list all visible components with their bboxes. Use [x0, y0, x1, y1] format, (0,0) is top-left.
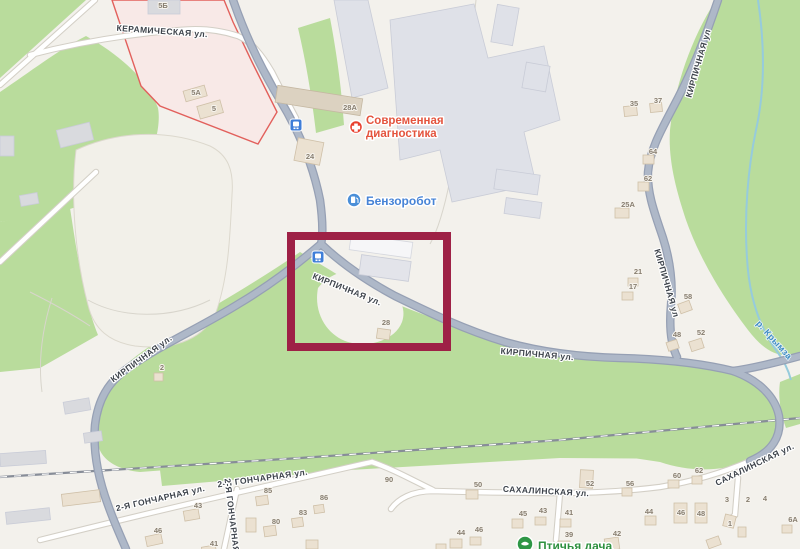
- building-label: 6А: [788, 515, 798, 524]
- building-label: 28А: [343, 103, 357, 112]
- building-label: 56: [626, 479, 634, 488]
- building-label: 46: [475, 525, 483, 534]
- building-label: 43: [194, 501, 202, 510]
- building-label: 44: [645, 507, 654, 516]
- building-label: 41: [565, 508, 573, 517]
- building-label: 48: [673, 330, 681, 339]
- building-label: 85: [264, 486, 272, 495]
- building-label: 25А: [621, 200, 635, 209]
- building-label: 21: [634, 267, 642, 276]
- building-label: 80: [272, 517, 280, 526]
- poi-medical-name-line1[interactable]: Современная: [366, 115, 444, 127]
- poi-medical-name-line2[interactable]: диагностика: [366, 128, 437, 140]
- building-label: 5А: [191, 88, 201, 97]
- transit-stop-icon[interactable]: [290, 119, 302, 131]
- building-label: 46: [154, 526, 162, 535]
- poi-fuel-name[interactable]: Бензоробот: [366, 194, 437, 208]
- building-label: 39: [565, 530, 573, 539]
- building-label: 17: [629, 282, 637, 291]
- building-label: 35: [630, 99, 638, 108]
- building-label: 58: [684, 292, 692, 301]
- building-label: 83: [299, 508, 307, 517]
- building-label: 45: [519, 509, 527, 518]
- poi-bird-name[interactable]: Птичья дача: [538, 539, 613, 549]
- building-label: 43: [539, 506, 547, 515]
- building-label: 3: [725, 495, 729, 504]
- building-label: 41: [210, 539, 218, 548]
- building-label: 2: [160, 363, 164, 372]
- building-label: 52: [697, 328, 705, 337]
- fuel-pump-glyph: [351, 197, 355, 204]
- building-label: 50: [474, 480, 482, 489]
- building-label: 46: [677, 508, 685, 517]
- building-label: 28: [382, 318, 390, 327]
- map-view[interactable]: 5Б 5А 5 28А 24 35 37 64 62 25А 21 17 58 …: [0, 0, 800, 549]
- building-label: 90: [385, 475, 393, 484]
- building-label: 48: [697, 509, 705, 518]
- building-label: 5Б: [158, 1, 168, 10]
- building-label: 60: [673, 471, 681, 480]
- building-label: 64: [649, 147, 658, 156]
- building-label: 62: [644, 174, 652, 183]
- building-label: 1: [728, 519, 732, 528]
- building-label: 5: [212, 104, 216, 113]
- building-label: 2: [746, 495, 750, 504]
- building-label: 42: [613, 529, 621, 538]
- building-label: 86: [320, 493, 328, 502]
- map-canvas[interactable]: 5Б 5А 5 28А 24 35 37 64 62 25А 21 17 58 …: [0, 0, 800, 549]
- building-label: 37: [654, 96, 662, 105]
- building-label: 62: [695, 466, 703, 475]
- building-label: 24: [306, 152, 315, 161]
- building-label: 44: [457, 528, 466, 537]
- quarry-area: [74, 134, 233, 347]
- building-label: 52: [586, 479, 594, 488]
- transit-stop-icon[interactable]: [312, 251, 324, 263]
